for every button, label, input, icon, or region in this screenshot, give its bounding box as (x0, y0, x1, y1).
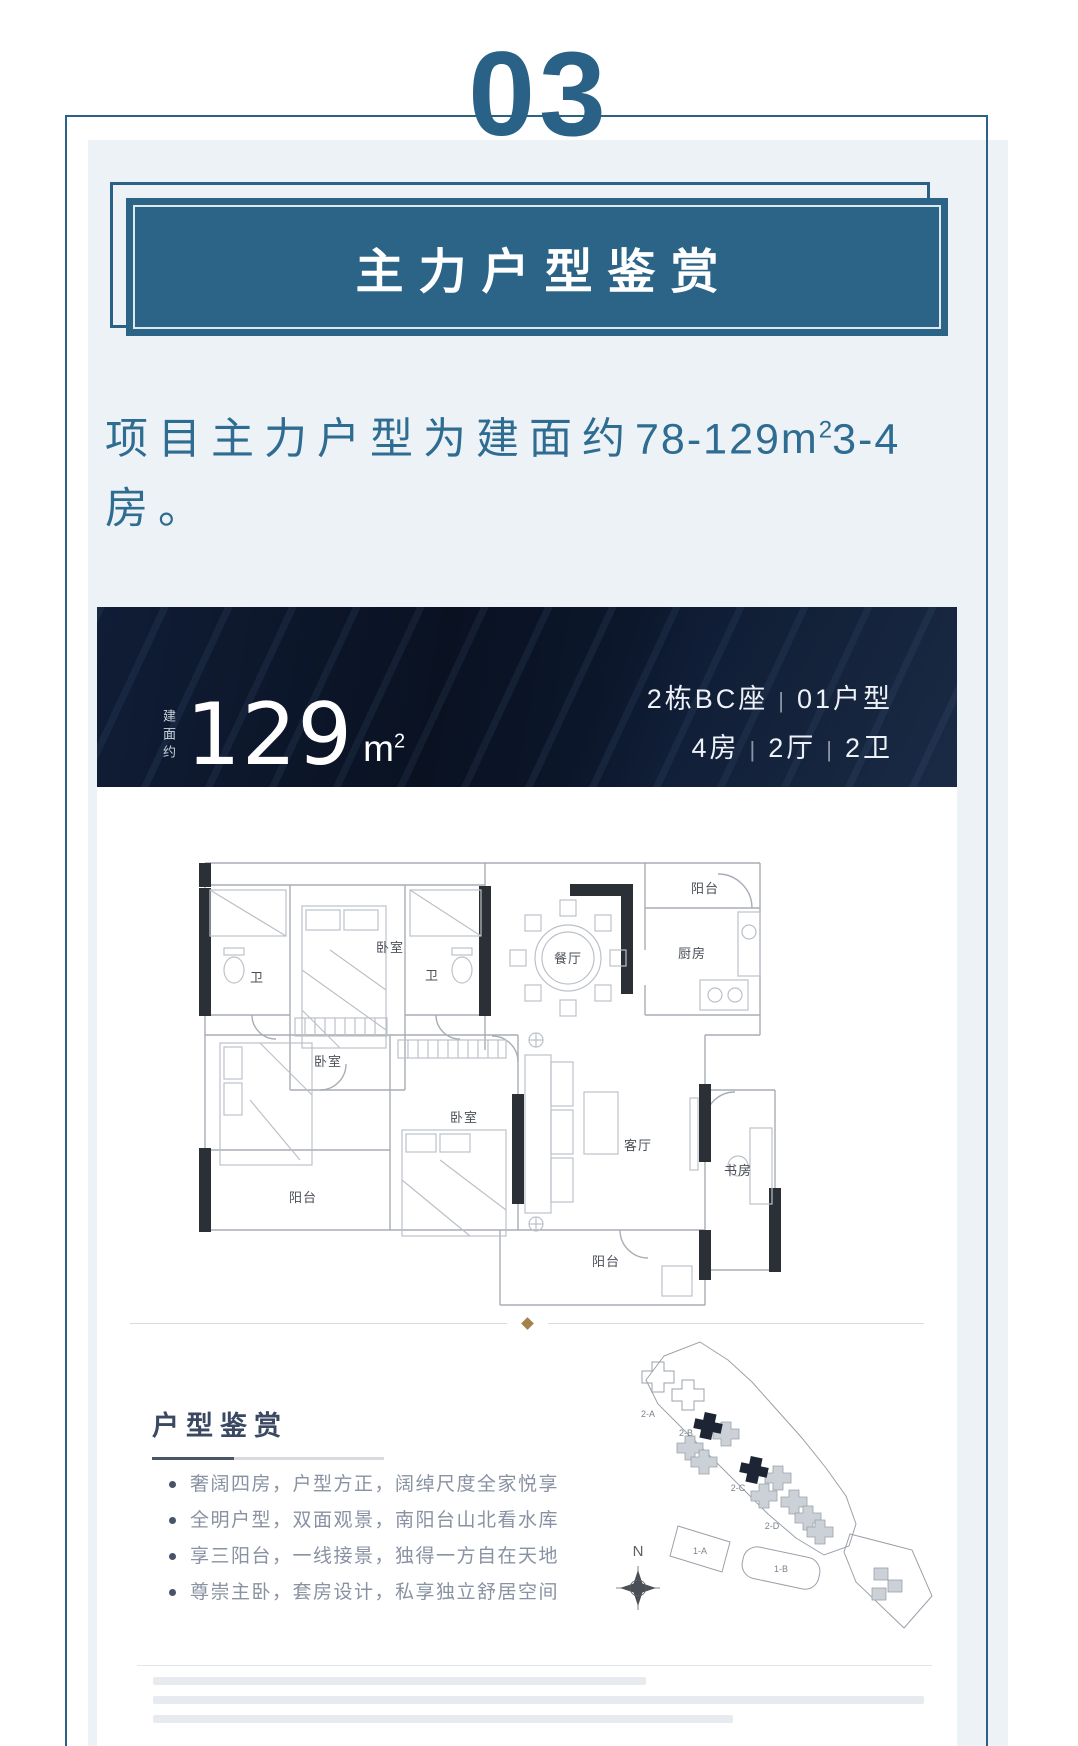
area-value: 129 (186, 699, 353, 773)
intro-paragraph: 项目主力户型为建面约78-129m23-4 房。 (105, 396, 900, 544)
disclaimer-block (137, 1665, 932, 1723)
appreciation-heading: 户型鉴赏 (152, 1404, 384, 1443)
unit-info-line2: 4房|2厅|2卫 (647, 726, 893, 765)
appreciation-bullets: 奢阔四房，户型方正，阔绰尺度全家悦享 全明户型，双面观景，南阳台山北看水库 享三… (169, 1475, 559, 1619)
room-label-study: 书房 (724, 1163, 752, 1178)
bullet-item: 尊崇主卧，套房设计，私享独立舒居空间 (169, 1583, 559, 1602)
section-number: 03 (0, 34, 1078, 140)
section-banner: 主力户型鉴赏 (126, 198, 948, 336)
site-label-2b: 2-B (679, 1428, 693, 1438)
unit-card: 建面约 129 m2 2栋BC座|01户型 4房|2厅|2卫 (97, 607, 957, 1746)
heading-underline (152, 1457, 384, 1460)
unit-info: 2栋BC座|01户型 4房|2厅|2卫 (647, 677, 893, 765)
disclaimer-line (153, 1677, 646, 1685)
banner-title: 主力户型鉴赏 (340, 232, 733, 302)
site-label-2c: 2-C (731, 1483, 746, 1493)
room-label-balcony-bc: 阳台 (592, 1254, 620, 1269)
disclaimer-line (153, 1696, 924, 1704)
bullet-item: 全明户型，双面观景，南阳台山北看水库 (169, 1511, 559, 1530)
floor-plan: 卫 卧室 卫 餐厅 阳台 厨房 卧室 卧室 客厅 书房 阳台 阳台 (140, 800, 910, 1315)
room-label-bath2: 卫 (425, 968, 439, 983)
room-label-dining: 餐厅 (554, 951, 582, 966)
room-label-living: 客厅 (624, 1138, 652, 1153)
intro-line-2: 房。 (105, 474, 900, 544)
room-label-bath1: 卫 (250, 970, 264, 985)
appreciation-section: 户型鉴赏 (152, 1404, 384, 1460)
site-label-2d: 2-D (765, 1521, 780, 1531)
room-label-bedroom-mid: 卧室 (450, 1110, 478, 1125)
bullet-dot (169, 1481, 176, 1488)
room-label-bedroom-top: 卧室 (376, 940, 404, 955)
bullet-dot (169, 1589, 176, 1596)
site-label-2a: 2-A (641, 1409, 655, 1419)
svg-text:N: N (633, 1543, 644, 1560)
bullet-dot (169, 1517, 176, 1524)
bullet-item: 享三阳台，一线接景，独得一方自在天地 (169, 1547, 559, 1566)
site-map: 2-A 2-B 2-C 2-D 1-A 1-B N (602, 1330, 967, 1660)
unit-card-header: 建面约 129 m2 2栋BC座|01户型 4房|2厅|2卫 (97, 607, 957, 787)
disclaimer-rule (137, 1665, 932, 1666)
site-label-1a: 1-A (693, 1546, 707, 1556)
room-label-bedroom-left: 卧室 (314, 1054, 342, 1069)
diamond-ornament-icon (521, 1317, 534, 1330)
room-label-balcony-bl: 阳台 (289, 1190, 317, 1205)
room-label-kitchen: 厨房 (678, 946, 706, 961)
section-divider (130, 1319, 924, 1328)
bullet-item: 奢阔四房，户型方正，阔绰尺度全家悦享 (169, 1475, 559, 1494)
area-unit: m2 (363, 728, 405, 773)
disclaimer-line (153, 1715, 733, 1723)
room-label-balcony-tr: 阳台 (691, 881, 719, 896)
intro-line-1: 项目主力户型为建面约78-129m23-4 (105, 396, 900, 474)
bullet-dot (169, 1553, 176, 1560)
compass-icon: N (616, 1543, 660, 1610)
section-number-clip: 03 (0, 0, 1078, 140)
article-page: 03 主力户型鉴赏 项目主力户型为建面约78-129m23-4 房。 建面约 1… (0, 0, 1078, 1746)
area-block: 建面约 129 m2 (159, 699, 405, 773)
unit-info-line1: 2栋BC座|01户型 (647, 677, 893, 716)
area-vertical-label: 建面约 (159, 709, 178, 773)
site-label-1b: 1-B (774, 1564, 788, 1574)
